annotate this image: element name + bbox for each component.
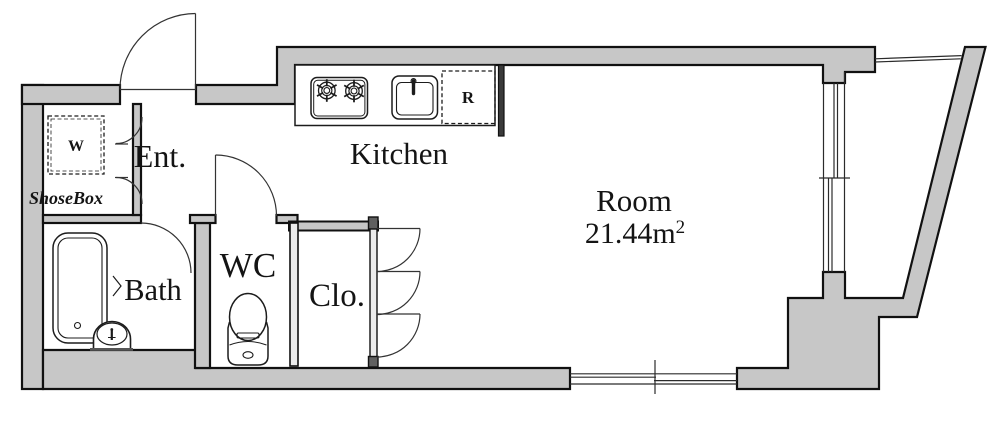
svg-text:WC: WC <box>220 246 276 285</box>
svg-text:Bath: Bath <box>124 273 182 307</box>
svg-text:W: W <box>68 138 84 155</box>
svg-text:Ent.: Ent. <box>134 138 186 174</box>
svg-text:21.44m2: 21.44m2 <box>585 217 685 250</box>
svg-text:Room: Room <box>596 183 672 218</box>
svg-text:Kitchen: Kitchen <box>350 136 449 171</box>
svg-text:R: R <box>462 88 475 107</box>
svg-text:Clo.: Clo. <box>309 278 365 314</box>
svg-text:ShoseBox: ShoseBox <box>29 188 103 208</box>
